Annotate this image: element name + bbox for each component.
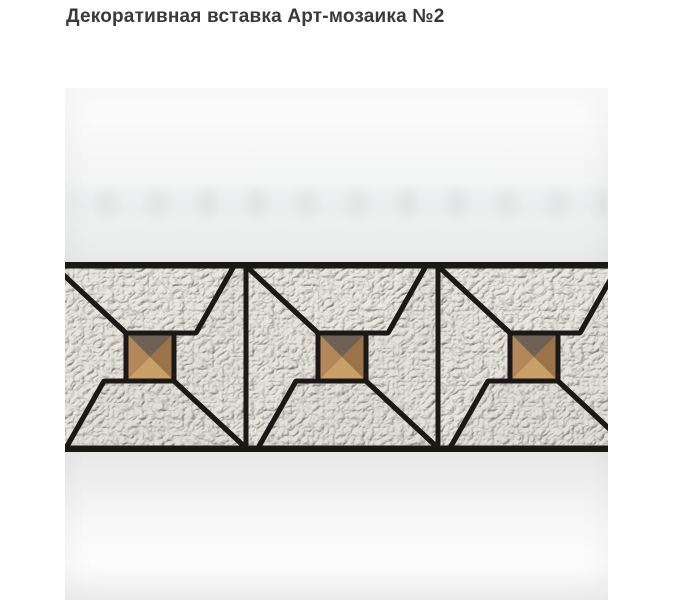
mosaic-band-image [65,262,608,452]
product-title: Декоративная вставка Арт-мозаика №2 [66,6,445,28]
product-photo[interactable] [65,88,608,600]
photo-reflection [65,190,608,216]
